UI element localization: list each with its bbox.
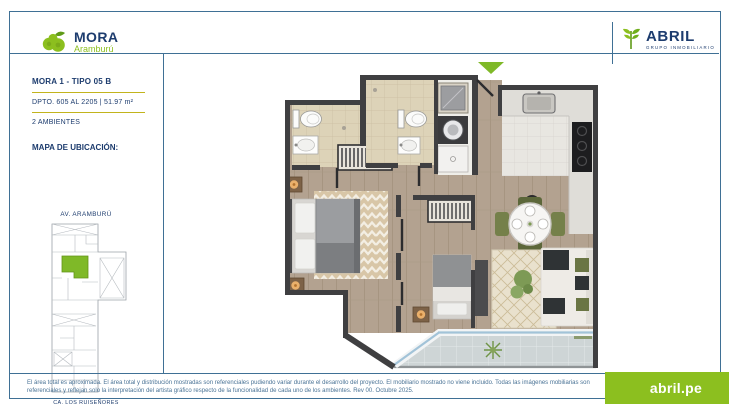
- balcony-plant: [484, 341, 502, 359]
- toilet: [293, 110, 322, 128]
- living-area: [475, 248, 594, 328]
- cooktop: [572, 122, 592, 172]
- wood-floor-entry: [474, 80, 502, 120]
- entrance-arrow-icon: [478, 62, 504, 74]
- header-divider: [612, 22, 613, 64]
- dining-table: [509, 203, 551, 245]
- map-heading: MAPA DE UBICACIÓN:: [32, 143, 163, 152]
- shower-tray: [438, 146, 468, 172]
- website-label: abril.pe: [632, 380, 702, 396]
- sink: [398, 137, 420, 154]
- tv-console: [475, 260, 488, 316]
- unit-rooms: 2 AMBIENTES: [32, 119, 163, 126]
- unit-info: DPTO. 605 AL 2205 | 51.97 m²: [32, 99, 163, 106]
- washing-machine: [438, 116, 468, 144]
- sink: [293, 136, 318, 154]
- dining-chair: [495, 212, 509, 236]
- street-label-bottom: CA. LOS RUISEÑORES: [9, 400, 163, 406]
- bed: [433, 255, 471, 319]
- divider-rule: [32, 92, 145, 93]
- website-link[interactable]: abril.pe: [605, 372, 729, 404]
- sidebar: MORA 1 - TIPO 05 B DPTO. 605 AL 2205 | 5…: [9, 53, 164, 373]
- toilet: [398, 110, 427, 128]
- mora-logo: MORA Aramburú: [41, 29, 118, 54]
- disclaimer-text: El área total es aproximada. El área tot…: [27, 379, 602, 395]
- mora-berry-icon: [41, 29, 67, 54]
- footer: El área total es aproximada. El área tot…: [9, 373, 719, 399]
- closet: [428, 200, 474, 222]
- brochure-page: MORA Aramburú ABRIL GRUPO INMOBILIARIO M…: [0, 0, 730, 410]
- balcony: [394, 334, 596, 367]
- street-label-top: AV. ARAMBURÚ: [9, 211, 163, 218]
- laundry: [438, 80, 472, 175]
- header: MORA Aramburú ABRIL GRUPO INMOBILIARIO: [9, 11, 719, 54]
- abril-leaf-icon: [622, 28, 641, 50]
- nightstand: [413, 307, 429, 322]
- disclaimer-line-1: El área total es aproximada. El área tot…: [27, 380, 548, 386]
- heater-cabinet: [438, 83, 468, 113]
- divider-rule: [32, 112, 145, 113]
- sofa: [541, 248, 594, 326]
- dining-chair: [551, 212, 565, 236]
- bathroom-2: [366, 80, 434, 165]
- developer-name: ABRIL: [646, 29, 715, 44]
- floor-plan: [280, 58, 605, 373]
- bed: [285, 199, 360, 273]
- shower-drain: [342, 126, 346, 130]
- kitchen-sink: [523, 91, 555, 113]
- abril-logo: ABRIL GRUPO INMOBILIARIO: [622, 28, 715, 50]
- project-name: MORA: [74, 30, 118, 44]
- developer-tagline: GRUPO INMOBILIARIO: [646, 45, 715, 50]
- location-map: [38, 222, 134, 398]
- outside-area: [280, 295, 343, 373]
- shower-drain: [373, 88, 377, 92]
- unit-title: MORA 1 - TIPO 05 B: [32, 77, 163, 86]
